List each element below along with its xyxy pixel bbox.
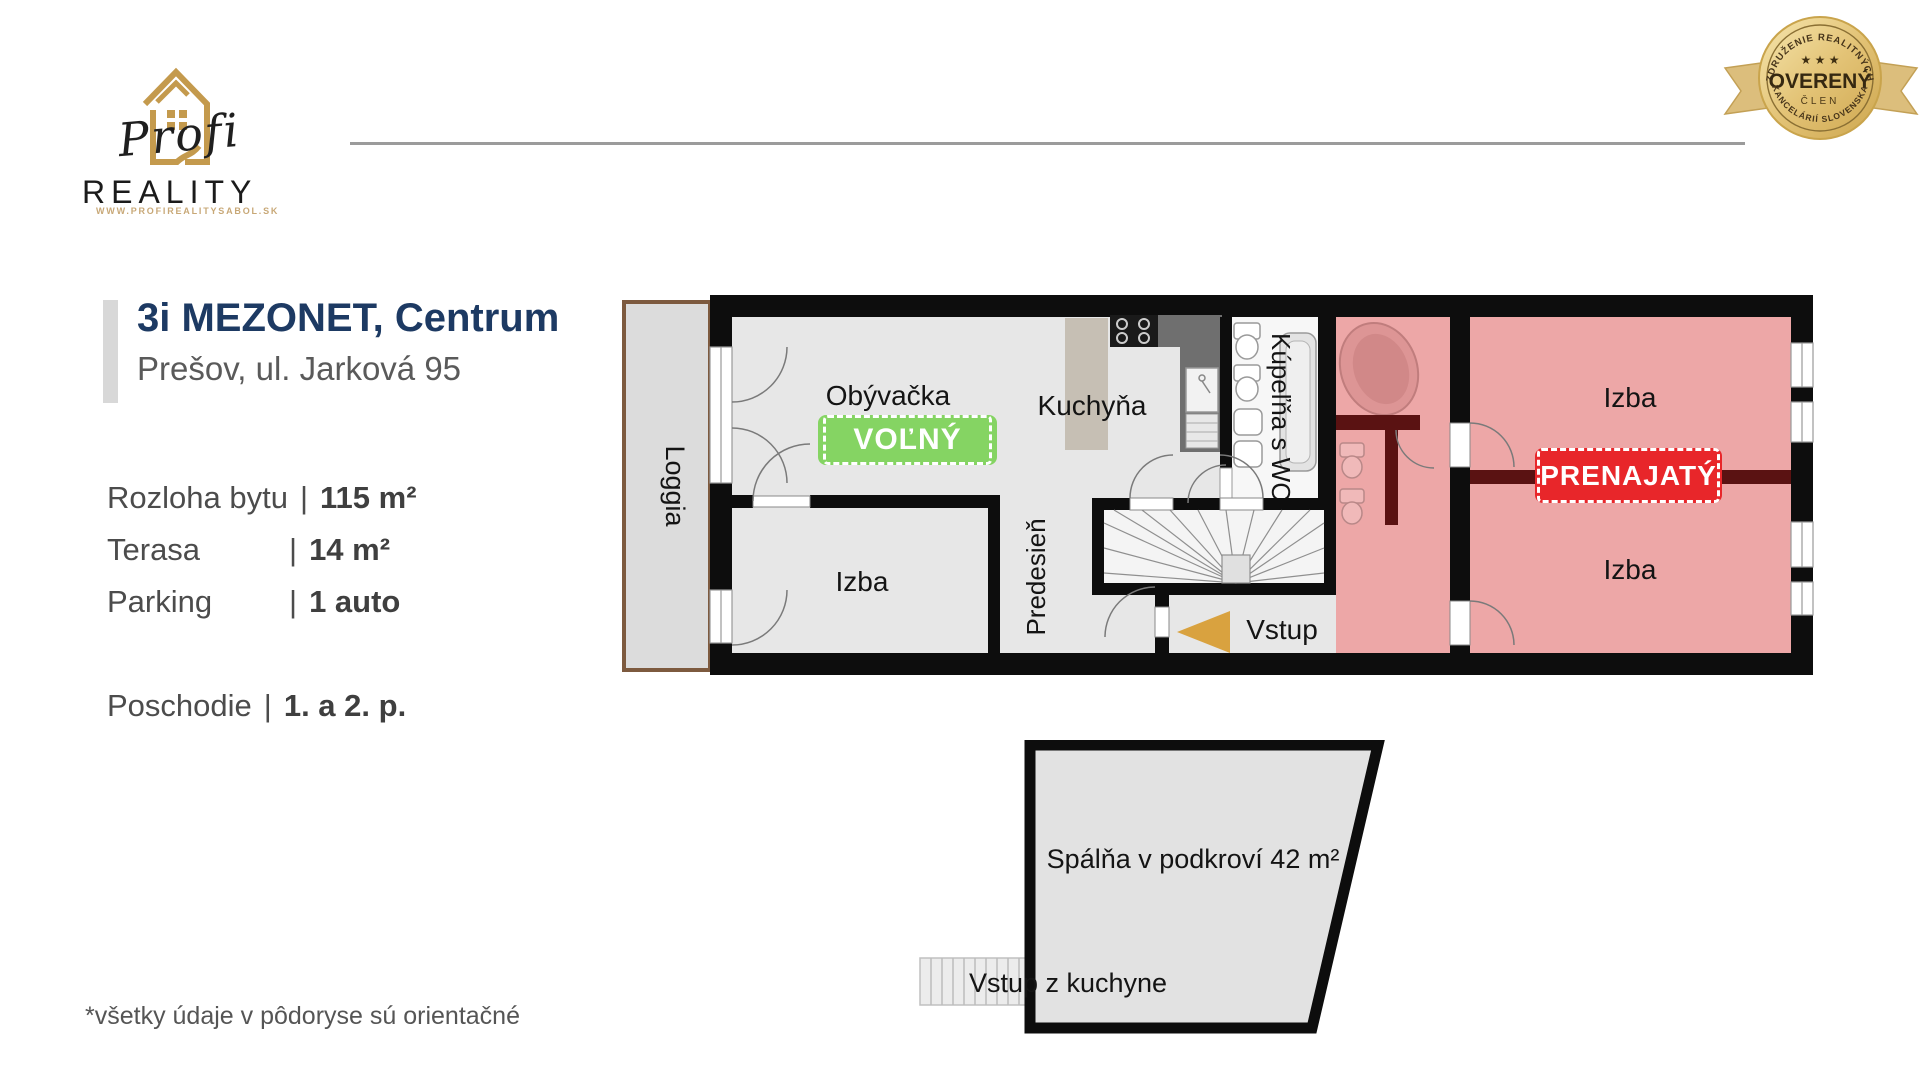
detail-value: 14 m² [309,532,390,568]
detail-value: 1 auto [309,584,400,620]
room-loggia: Loggia [624,302,710,670]
brand-url: WWW.PROFIREALITYSABOL.SK [96,206,279,216]
room-label-living: Obývačka [826,380,951,411]
detail-label: Rozloha bytu [107,480,288,516]
room-label-bathroom: Kúpeľňa s WC [1266,333,1296,501]
detail-separator: | [300,480,308,516]
medal-stars: ★ ★ ★ [1801,53,1840,67]
room-label-hall: Predesieň [1021,518,1051,635]
attic-floorplan: Spálňa v podkroví 42 m² Vstup z kuchyne [905,740,1425,1040]
detail-row-parking: Parking | 1 auto [107,584,400,620]
room-label-room-top-right: Izba [1604,382,1657,413]
room-label-loggia: Loggia [660,445,690,527]
detail-label: Parking [107,584,277,620]
detail-separator: | [289,584,297,620]
detail-value: 1. a 2. p. [284,688,406,724]
detail-label: Poschodie [107,688,252,724]
medal-main: OVERENÝ [1769,69,1872,93]
status-badge-rented-text: PRENAJATÝ [1537,448,1720,503]
flyer-canvas: Profi REALITY WWW.PROFIREALITYSABOL.SK Z… [0,0,1920,1080]
verified-member-medal: ZDRUŽENIE REALITNÝCH ★ ★ ★ OVERENÝ ČLEN … [1723,10,1919,150]
brand-profi: Profi [116,103,243,167]
attic-room-label: Spálňa v podkroví 42 m² [1047,844,1340,874]
room-bathroom: Kúpeľňa s WC [1220,317,1336,503]
stairs [1092,498,1336,595]
sink-icon [1186,368,1218,448]
status-badge-free-text: VOĽNÝ [823,415,992,465]
listing-address: Prešov, ul. Jarková 95 [137,350,461,388]
header-divider [350,142,1745,145]
detail-separator: | [264,688,272,724]
entry-label: Vstup [1246,614,1318,645]
detail-value: 115 m² [320,480,417,516]
room-label-room-left: Izba [836,566,889,597]
status-badge-free: VOĽNÝ [818,415,997,465]
room-label-room-bottom-right: Izba [1604,554,1657,585]
footnote: *všetky údaje v pôdoryse sú orientačné [85,1002,520,1031]
room-label-kitchen: Kuchyňa [1038,390,1147,421]
title-accent-bar [103,300,118,403]
medal-sub: ČLEN [1801,94,1840,107]
attic-entry-label: Vstup z kuchyne [969,968,1167,998]
detail-separator: | [289,532,297,568]
detail-row-area: Rozloha bytu | 115 m² [107,480,417,516]
detail-label: Terasa [107,532,277,568]
listing-title: 3i MEZONET, Centrum [137,296,559,341]
detail-row-floor: Poschodie | 1. a 2. p. [107,688,406,724]
status-badge-rented: PRENAJATÝ [1535,448,1722,503]
detail-row-terrace: Terasa | 14 m² [107,532,390,568]
